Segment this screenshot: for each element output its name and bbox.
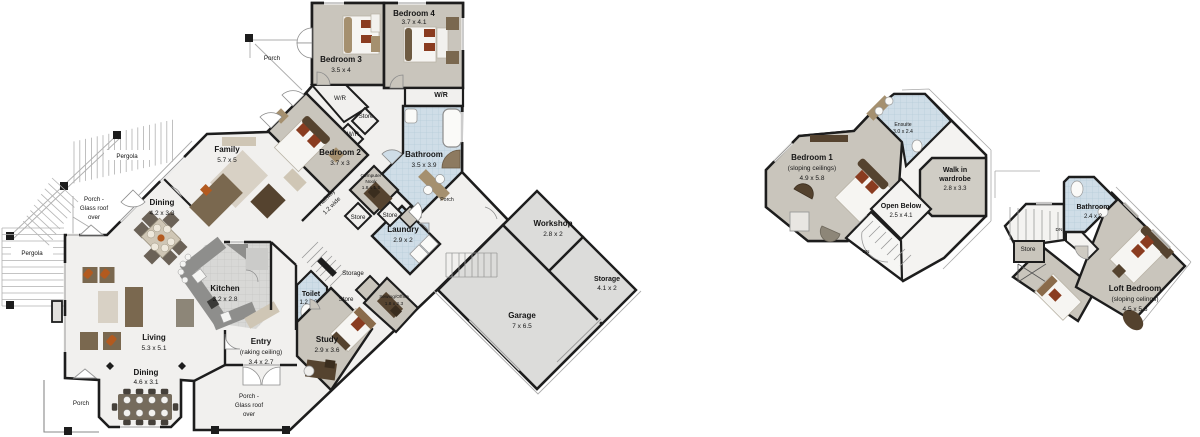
svg-text:3.0 x 2.4: 3.0 x 2.4 [893,129,913,135]
svg-text:Porch -: Porch - [84,196,104,203]
svg-text:over: over [243,411,255,418]
svg-text:4.1 x 2: 4.1 x 2 [597,285,617,292]
svg-text:2.8 x 3.3: 2.8 x 3.3 [943,186,967,192]
svg-text:3.2 x 2.8: 3.2 x 2.8 [213,296,238,303]
svg-text:DN: DN [1056,227,1063,233]
svg-text:1.8 x 2.3: 1.8 x 2.3 [385,301,404,307]
svg-text:2.9 x 3.6: 2.9 x 3.6 [315,347,340,354]
svg-text:Computer: Computer [360,173,381,179]
svg-text:Garage: Garage [508,311,536,320]
svg-text:over: over [88,214,100,221]
svg-text:W/R: W/R [334,95,347,102]
svg-text:DN: DN [863,249,870,255]
svg-text:3.5 x 4: 3.5 x 4 [331,67,351,74]
svg-text:Porch: Porch [73,400,90,407]
svg-text:Family: Family [214,145,240,154]
svg-text:Sewing/Office: Sewing/Office [379,294,409,300]
svg-text:7 x 6.5: 7 x 6.5 [512,323,532,330]
svg-text:Bedroom 3: Bedroom 3 [320,55,362,64]
svg-text:3.7 x 4.1: 3.7 x 4.1 [402,19,427,26]
svg-text:Glass roof: Glass roof [80,205,108,212]
svg-text:Laundry: Laundry [387,225,419,234]
svg-text:2.8 x 2: 2.8 x 2 [543,231,563,238]
svg-text:Porch: Porch [440,197,454,203]
svg-text:5.7 x 5: 5.7 x 5 [217,157,237,164]
svg-text:Bathroom: Bathroom [1076,204,1109,211]
svg-text:Loft Bedroom: Loft Bedroom [1109,284,1161,293]
svg-text:Open Below: Open Below [881,203,922,210]
svg-text:Store: Store [351,214,366,221]
svg-text:W/R: W/R [434,92,448,99]
svg-text:Entry: Entry [251,337,272,346]
svg-text:3.7 x 3: 3.7 x 3 [330,160,350,167]
svg-text:Toilet: Toilet [302,291,321,298]
svg-text:Pergola: Pergola [21,250,43,257]
svg-text:(sloping celings): (sloping celings) [1112,296,1159,303]
svg-text:(sloping ceilings): (sloping ceilings) [788,165,836,172]
svg-text:Nook: Nook [365,179,377,185]
svg-text:(raking ceiling): (raking ceiling) [240,349,282,356]
svg-text:Storage: Storage [594,276,620,283]
svg-text:Store: Store [359,113,374,120]
svg-text:Pergola: Pergola [116,153,138,160]
svg-text:3.4 x 2.7: 3.4 x 2.7 [249,359,274,366]
svg-text:2.4 x 2: 2.4 x 2 [1084,214,1103,220]
svg-text:Ensuite: Ensuite [894,122,911,128]
svg-text:Glass roof: Glass roof [235,402,263,409]
svg-text:Bedroom 4: Bedroom 4 [393,9,435,18]
svg-text:3.5 x 3.9: 3.5 x 3.9 [412,162,437,169]
svg-text:Kitchen: Kitchen [210,284,239,293]
svg-text:5.3 x 5.1: 5.3 x 5.1 [142,345,167,352]
svg-text:Living: Living [142,333,166,342]
svg-text:Bedroom 2: Bedroom 2 [319,148,361,157]
svg-text:Study: Study [316,335,339,344]
svg-text:4.2 x 3.3: 4.2 x 3.3 [150,210,175,217]
svg-text:4.6 x 3.1: 4.6 x 3.1 [134,379,159,386]
svg-text:Porch -: Porch - [239,393,259,400]
svg-text:Bedroom 1: Bedroom 1 [791,153,833,162]
svg-text:Storage: Storage [342,270,364,277]
svg-text:wardrobe: wardrobe [938,176,971,183]
svg-text:Dining: Dining [134,368,159,377]
svg-text:2.9 x 2: 2.9 x 2 [393,237,413,244]
svg-text:Bathroom: Bathroom [405,150,443,159]
svg-text:4.9 x 5.8: 4.9 x 5.8 [800,175,825,182]
svg-text:Store: Store [1021,246,1036,253]
svg-text:2.5 x 4.1: 2.5 x 4.1 [889,213,913,219]
svg-text:Store: Store [383,212,398,219]
svg-text:4.5 x 5.6: 4.5 x 5.6 [1123,306,1148,313]
svg-text:Porch: Porch [264,55,281,62]
svg-text:1.8 x 1.5: 1.8 x 1.5 [362,185,381,191]
svg-text:Dining: Dining [150,198,175,207]
svg-text:Walk in: Walk in [943,167,967,174]
svg-text:Workshop: Workshop [534,219,573,228]
svg-text:Store: Store [339,296,354,303]
